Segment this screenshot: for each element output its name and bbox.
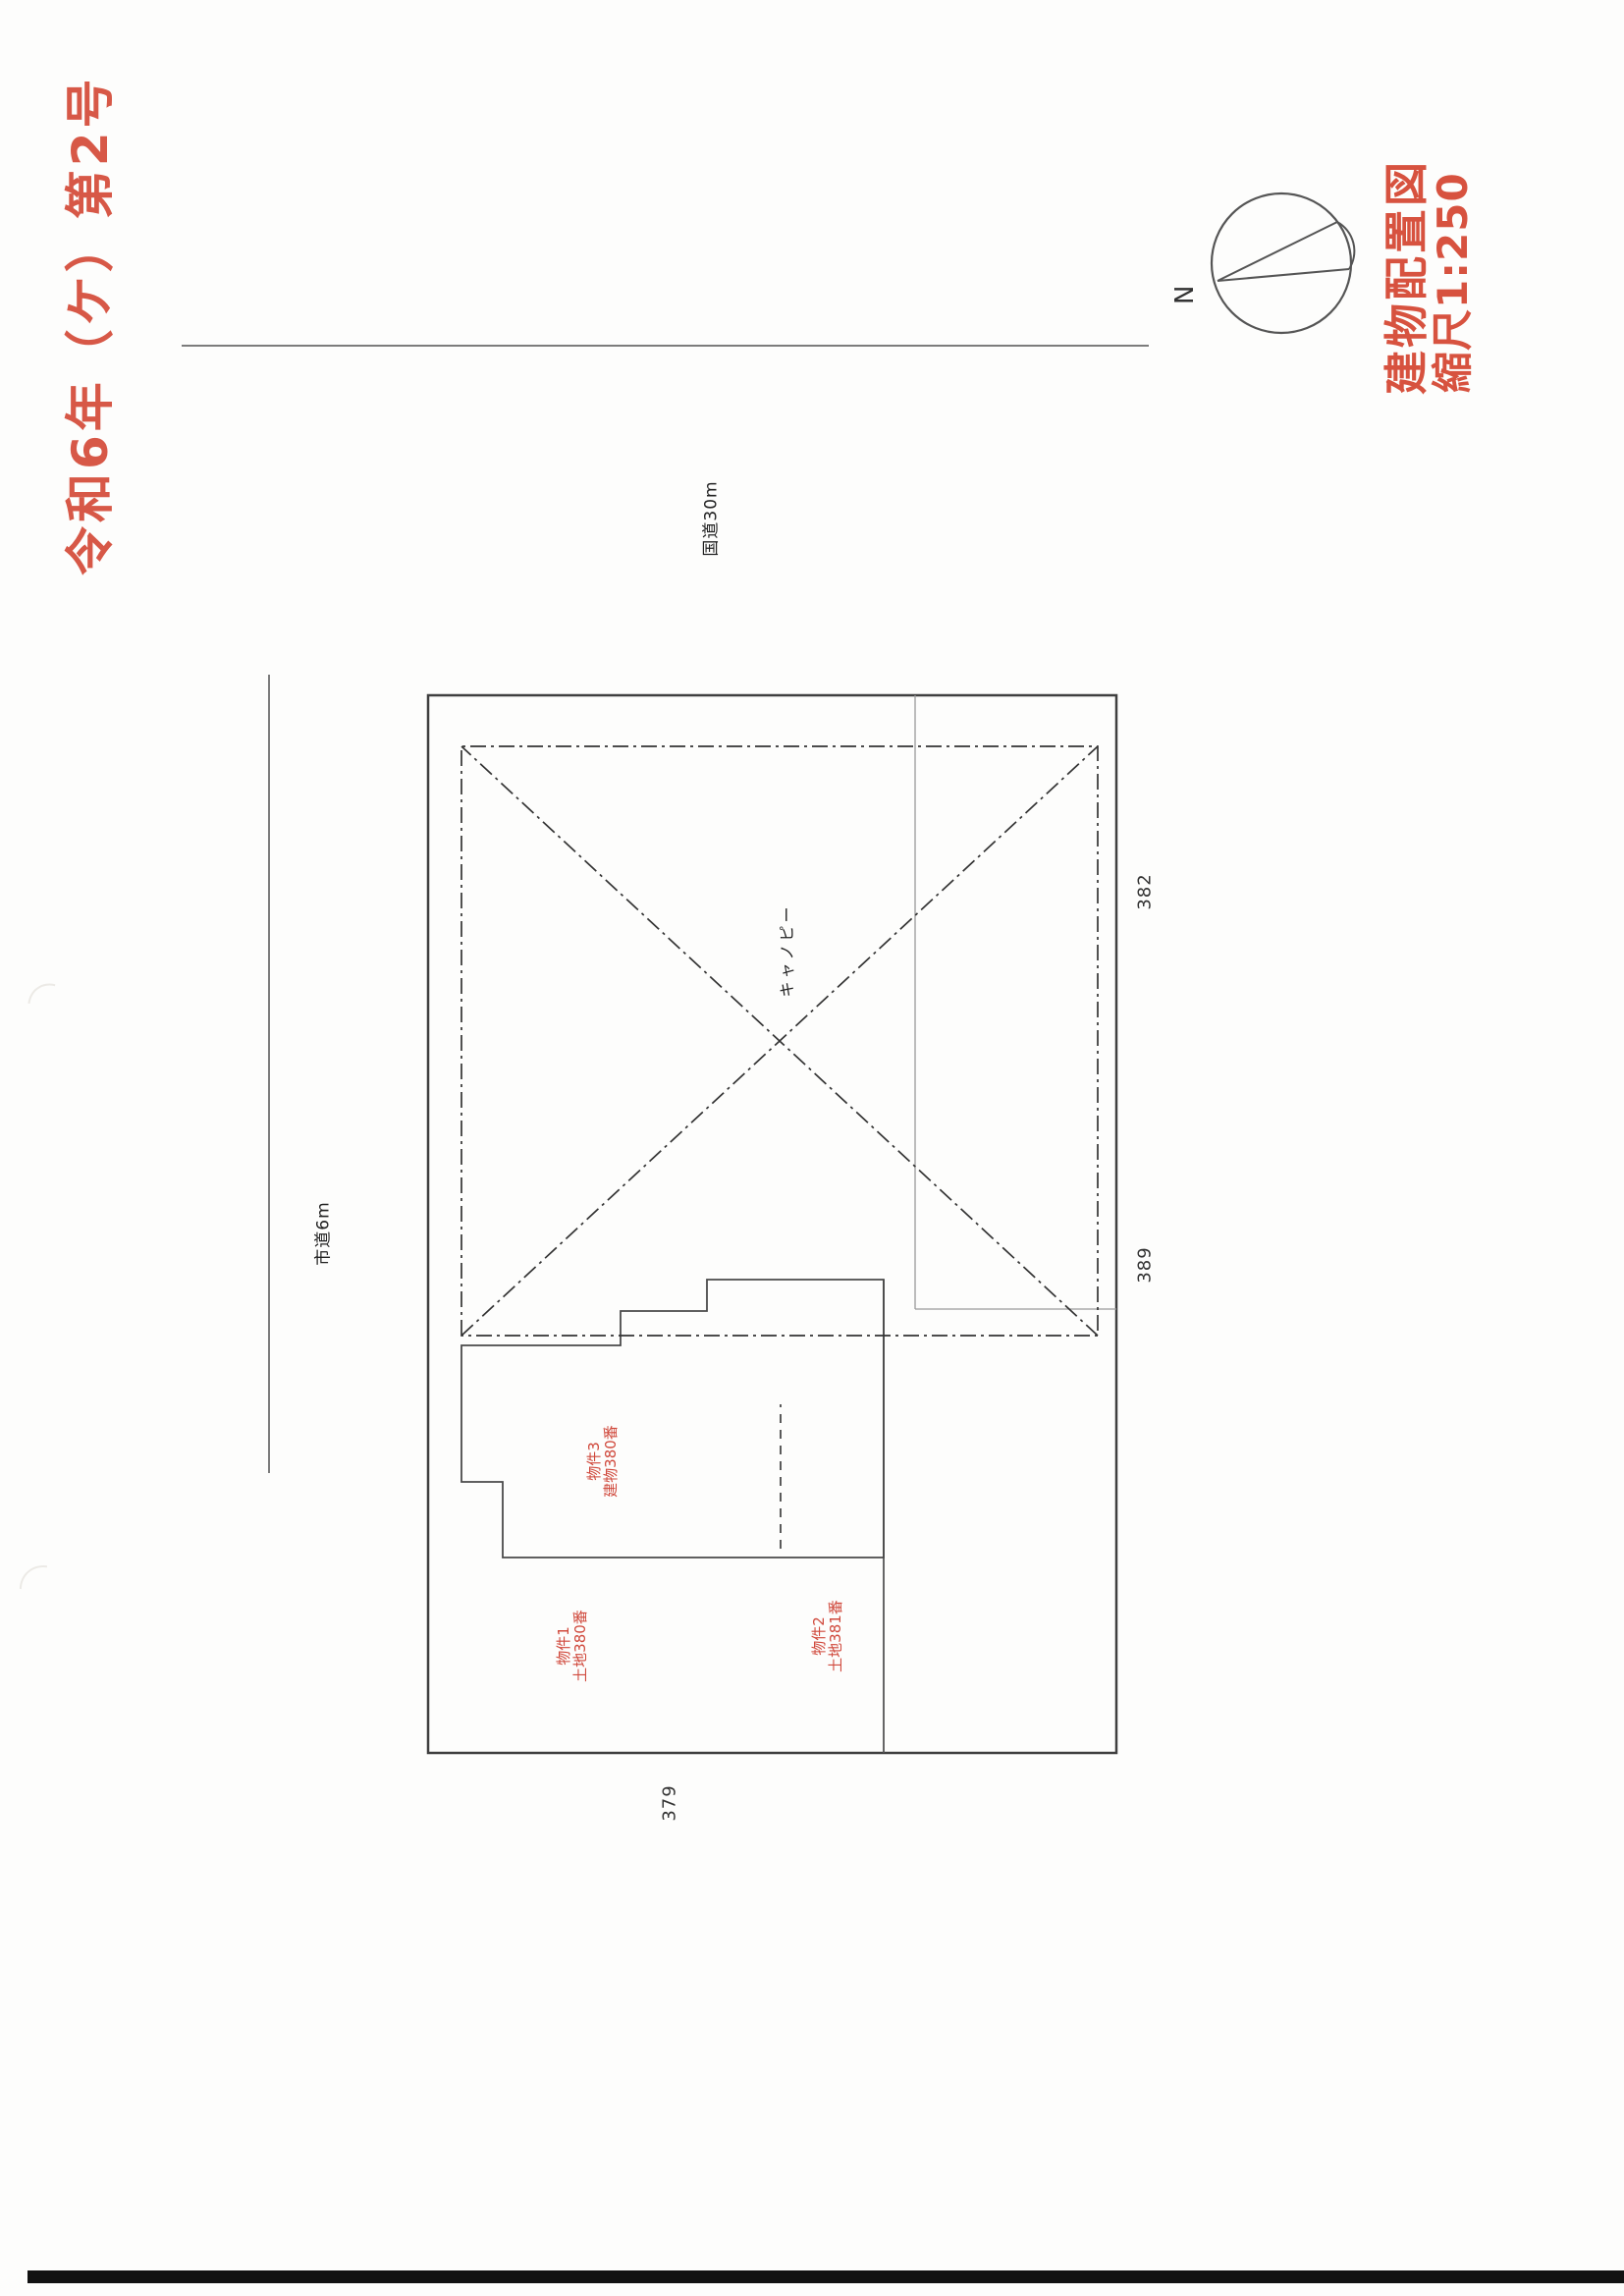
compass-icon [1212, 193, 1354, 333]
scanned-document-page: 令和6年（ケ）第2号 建物配置図 縮尺1:250 N 国道30m 市道6m キャ… [0, 0, 1624, 2296]
site-boundary [428, 695, 1116, 1753]
property1-label: 物件1 土地380番 [556, 1610, 589, 1682]
building-outline [461, 1280, 884, 1558]
parcel-number-379: 379 [660, 1784, 680, 1821]
parcel-number-389: 389 [1135, 1246, 1156, 1283]
drawing-scale: 縮尺1:250 [1420, 172, 1480, 393]
road-label-city: 市道6m [309, 1201, 334, 1265]
property2-parcel: 土地381番 [828, 1600, 844, 1672]
property3-name: 物件3 [586, 1425, 603, 1498]
rotated-drawing-sheet: 令和6年（ケ）第2号 建物配置図 縮尺1:250 N 国道30m 市道6m キャ… [0, 0, 1624, 2296]
property3-label: 物件3 建物380番 [586, 1425, 620, 1498]
case-number: 令和6年（ケ）第2号 [51, 75, 122, 575]
property1-parcel: 土地380番 [572, 1610, 589, 1682]
canopy-outline [461, 746, 1098, 1336]
property1-name: 物件1 [556, 1610, 572, 1682]
property2-label: 物件2 土地381番 [811, 1600, 844, 1672]
property2-name: 物件2 [811, 1600, 828, 1672]
property3-parcel: 建物380番 [603, 1425, 620, 1498]
parcel-number-382: 382 [1135, 873, 1156, 909]
canopy-label: キャノピー [774, 903, 797, 997]
north-label: N [1170, 286, 1200, 304]
road-label-national: 国道30m [697, 480, 722, 556]
scan-edge-bar [27, 2270, 1624, 2283]
